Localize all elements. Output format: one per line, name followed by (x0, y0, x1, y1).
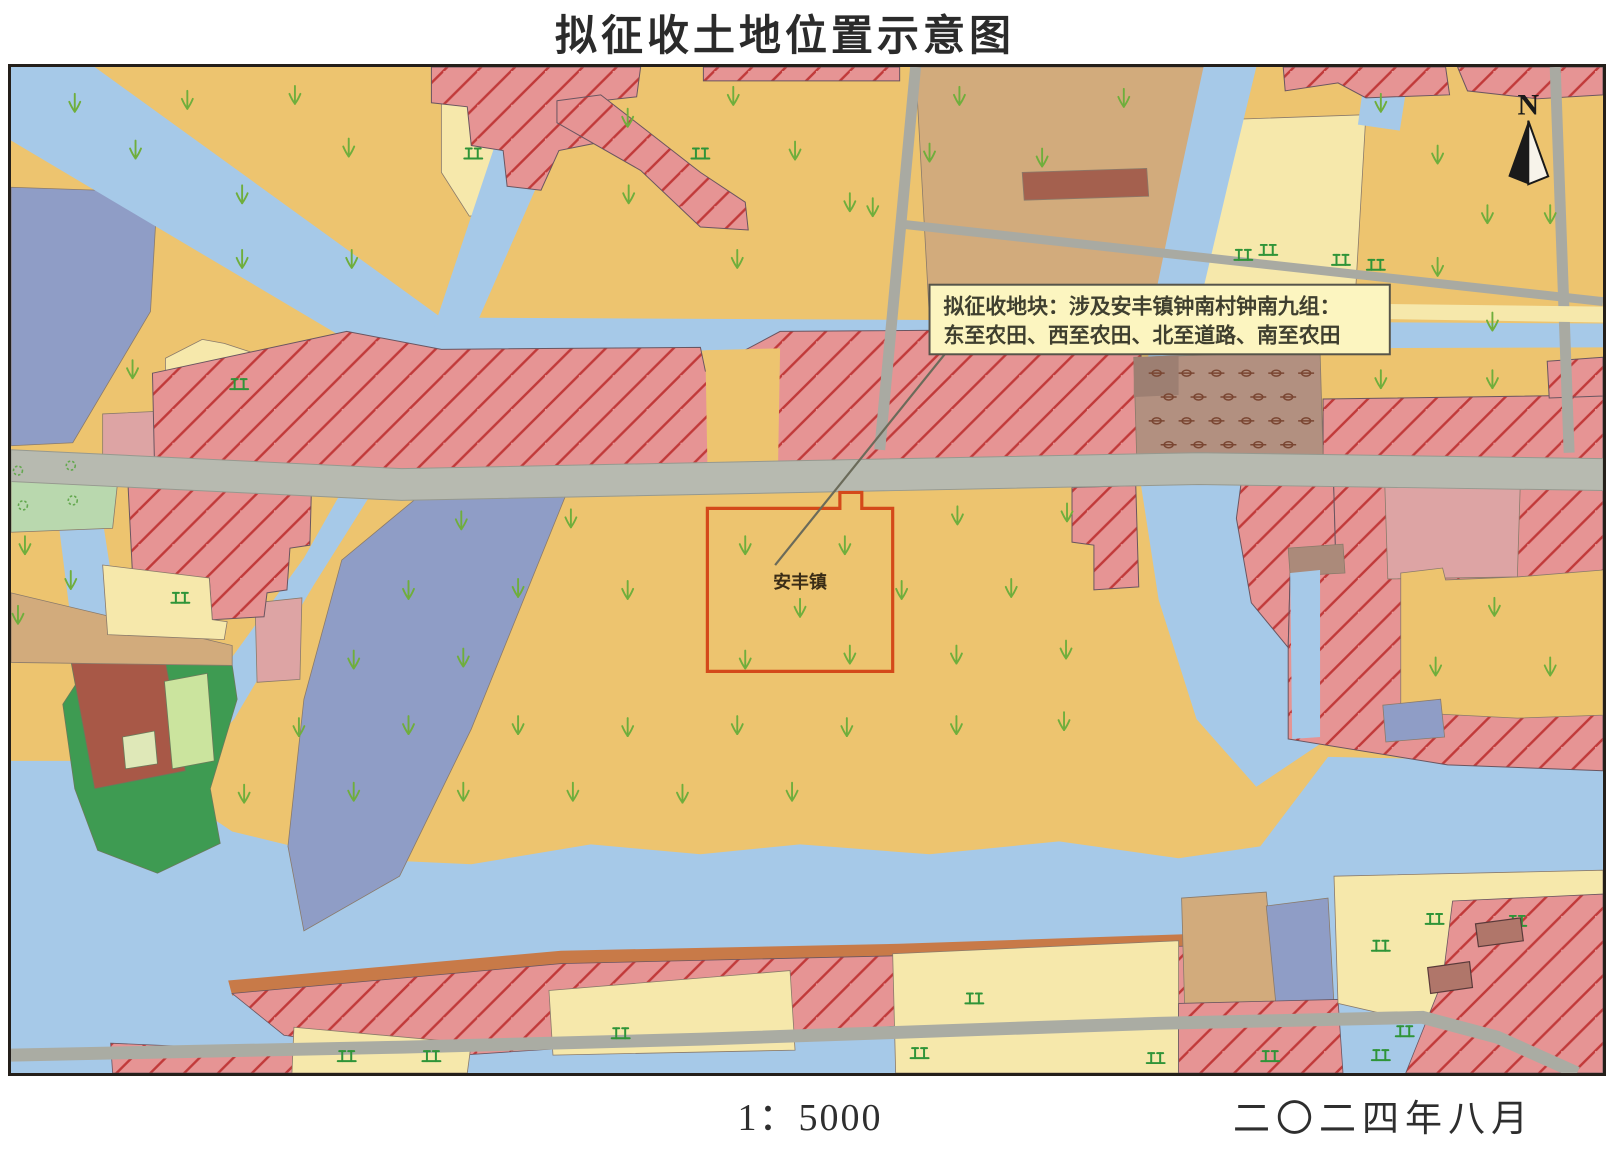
north-label: N (1517, 89, 1539, 122)
page-title: 拟征收土地位置示意图 (0, 2, 1570, 63)
map-container: 安丰镇 拟征收地块：涉及安丰镇钟南村钟南九组： 东至农田、西至农田、北至道路、南… (8, 64, 1606, 1076)
parcel-label: 安丰镇 (773, 571, 827, 592)
callout-box: 拟征收地块：涉及安丰镇钟南村钟南九组： 东至农田、西至农田、北至道路、南至农田 (930, 285, 1390, 355)
orchard-region (1134, 351, 1323, 458)
callout-line-1: 拟征收地块：涉及安丰镇钟南村钟南九组： (943, 295, 1340, 319)
large-building (1022, 168, 1149, 200)
date-text: 二〇二四年八月 (1233, 1088, 1534, 1142)
callout-line-2: 东至农田、西至农田、北至道路、南至农田 (943, 323, 1340, 347)
map-canvas: 安丰镇 拟征收地块：涉及安丰镇钟南村钟南九组： 东至农田、西至农田、北至道路、南… (11, 67, 1603, 1073)
scale-text: 1：5000 (690, 1086, 930, 1141)
